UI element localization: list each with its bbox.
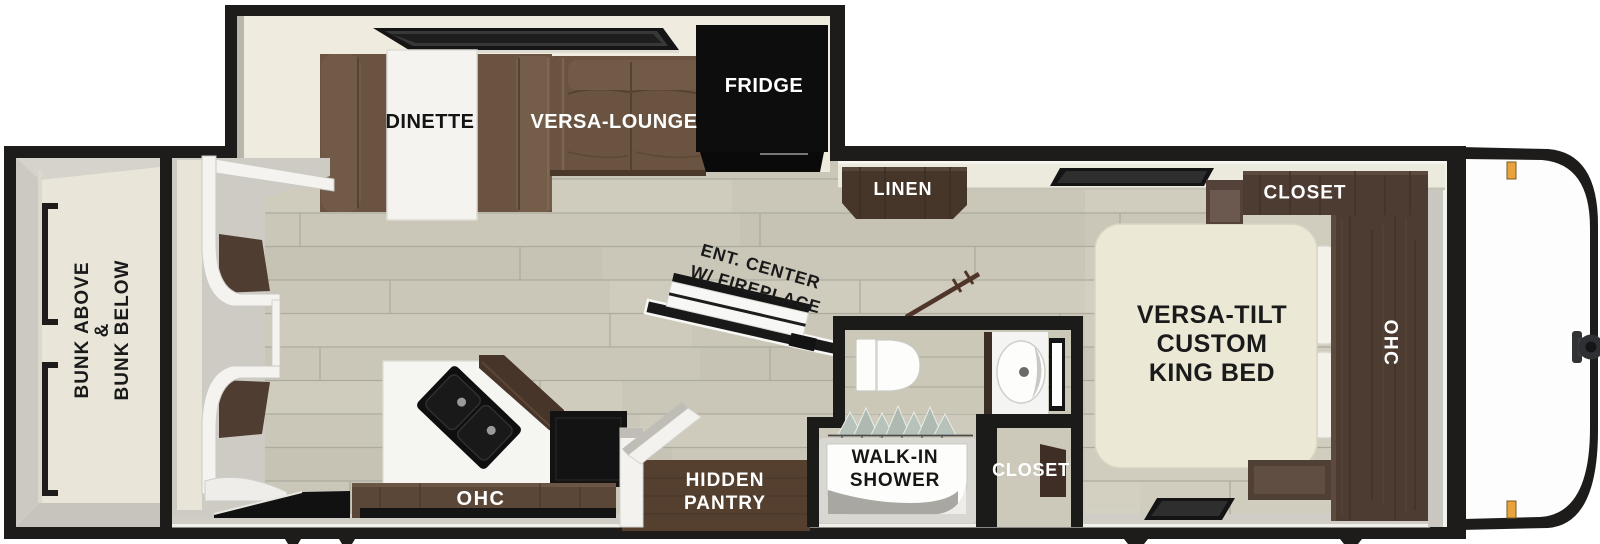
svg-text:PANTRY: PANTRY — [684, 493, 766, 514]
svg-text:HIDDEN: HIDDEN — [686, 470, 765, 491]
svg-text:BUNK ABOVE: BUNK ABOVE — [72, 261, 93, 398]
svg-text:BUNK BELOW: BUNK BELOW — [112, 260, 133, 401]
svg-text:OHC: OHC — [1380, 320, 1401, 367]
svg-text:DINETTE: DINETTE — [385, 111, 474, 133]
svg-text:OHC: OHC — [457, 488, 506, 510]
svg-text:VERSA-LOUNGE: VERSA-LOUNGE — [530, 111, 697, 133]
svg-text:&: & — [92, 323, 113, 338]
svg-text:WALK-IN: WALK-IN — [852, 447, 939, 468]
svg-text:CLOSET: CLOSET — [1263, 183, 1346, 204]
svg-text:FRIDGE: FRIDGE — [725, 75, 804, 97]
svg-text:KING BED: KING BED — [1149, 359, 1275, 387]
svg-text:LINEN: LINEN — [874, 179, 933, 199]
svg-text:SHOWER: SHOWER — [850, 470, 940, 491]
svg-text:CLOSET: CLOSET — [992, 460, 1070, 480]
svg-text:CUSTOM: CUSTOM — [1157, 330, 1268, 358]
svg-text:VERSA-TILT: VERSA-TILT — [1137, 301, 1287, 329]
